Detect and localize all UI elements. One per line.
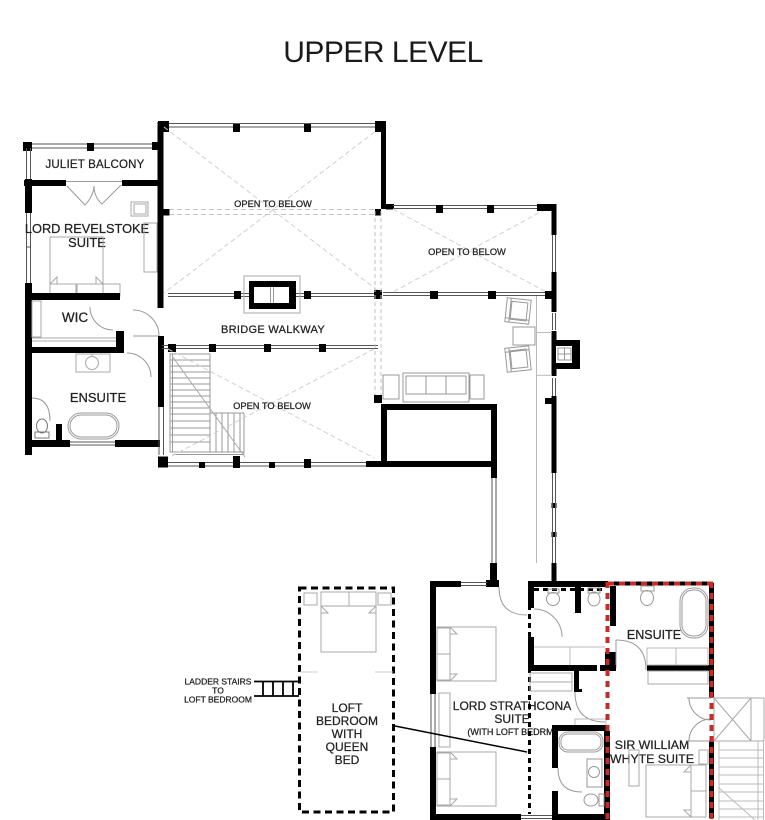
- svg-text:LORD STRATHCONA: LORD STRATHCONA: [453, 699, 571, 713]
- svg-text:LOFT BEDROOM: LOFT BEDROOM: [184, 695, 252, 705]
- svg-text:BRIDGE WALKWAY: BRIDGE WALKWAY: [221, 324, 325, 336]
- svg-text:ENSUITE: ENSUITE: [70, 390, 127, 405]
- svg-text:OPEN TO BELOW: OPEN TO BELOW: [428, 247, 506, 257]
- svg-text:WIC: WIC: [62, 310, 88, 325]
- svg-text:BEDROOM: BEDROOM: [316, 714, 378, 728]
- svg-text:UPPER LEVEL: UPPER LEVEL: [283, 36, 483, 69]
- svg-text:SUITE: SUITE: [494, 712, 529, 726]
- svg-text:SIR WILLIAM: SIR WILLIAM: [615, 738, 689, 752]
- svg-text:QUEEN: QUEEN: [326, 740, 369, 754]
- svg-text:LORD REVELSTOKE: LORD REVELSTOKE: [25, 221, 149, 236]
- svg-text:(WITH LOFT BEDRM): (WITH LOFT BEDRM): [467, 727, 556, 737]
- svg-text:WITH: WITH: [332, 727, 363, 741]
- svg-text:LOFT: LOFT: [332, 701, 363, 715]
- svg-text:WHYTE SUITE: WHYTE SUITE: [610, 752, 694, 766]
- svg-text:OPEN TO BELOW: OPEN TO BELOW: [233, 401, 311, 411]
- svg-text:OPEN TO BELOW: OPEN TO BELOW: [234, 199, 312, 209]
- svg-text:BED: BED: [335, 753, 360, 767]
- svg-text:JULIET BALCONY: JULIET BALCONY: [45, 159, 144, 171]
- svg-text:ENSUITE: ENSUITE: [627, 628, 681, 642]
